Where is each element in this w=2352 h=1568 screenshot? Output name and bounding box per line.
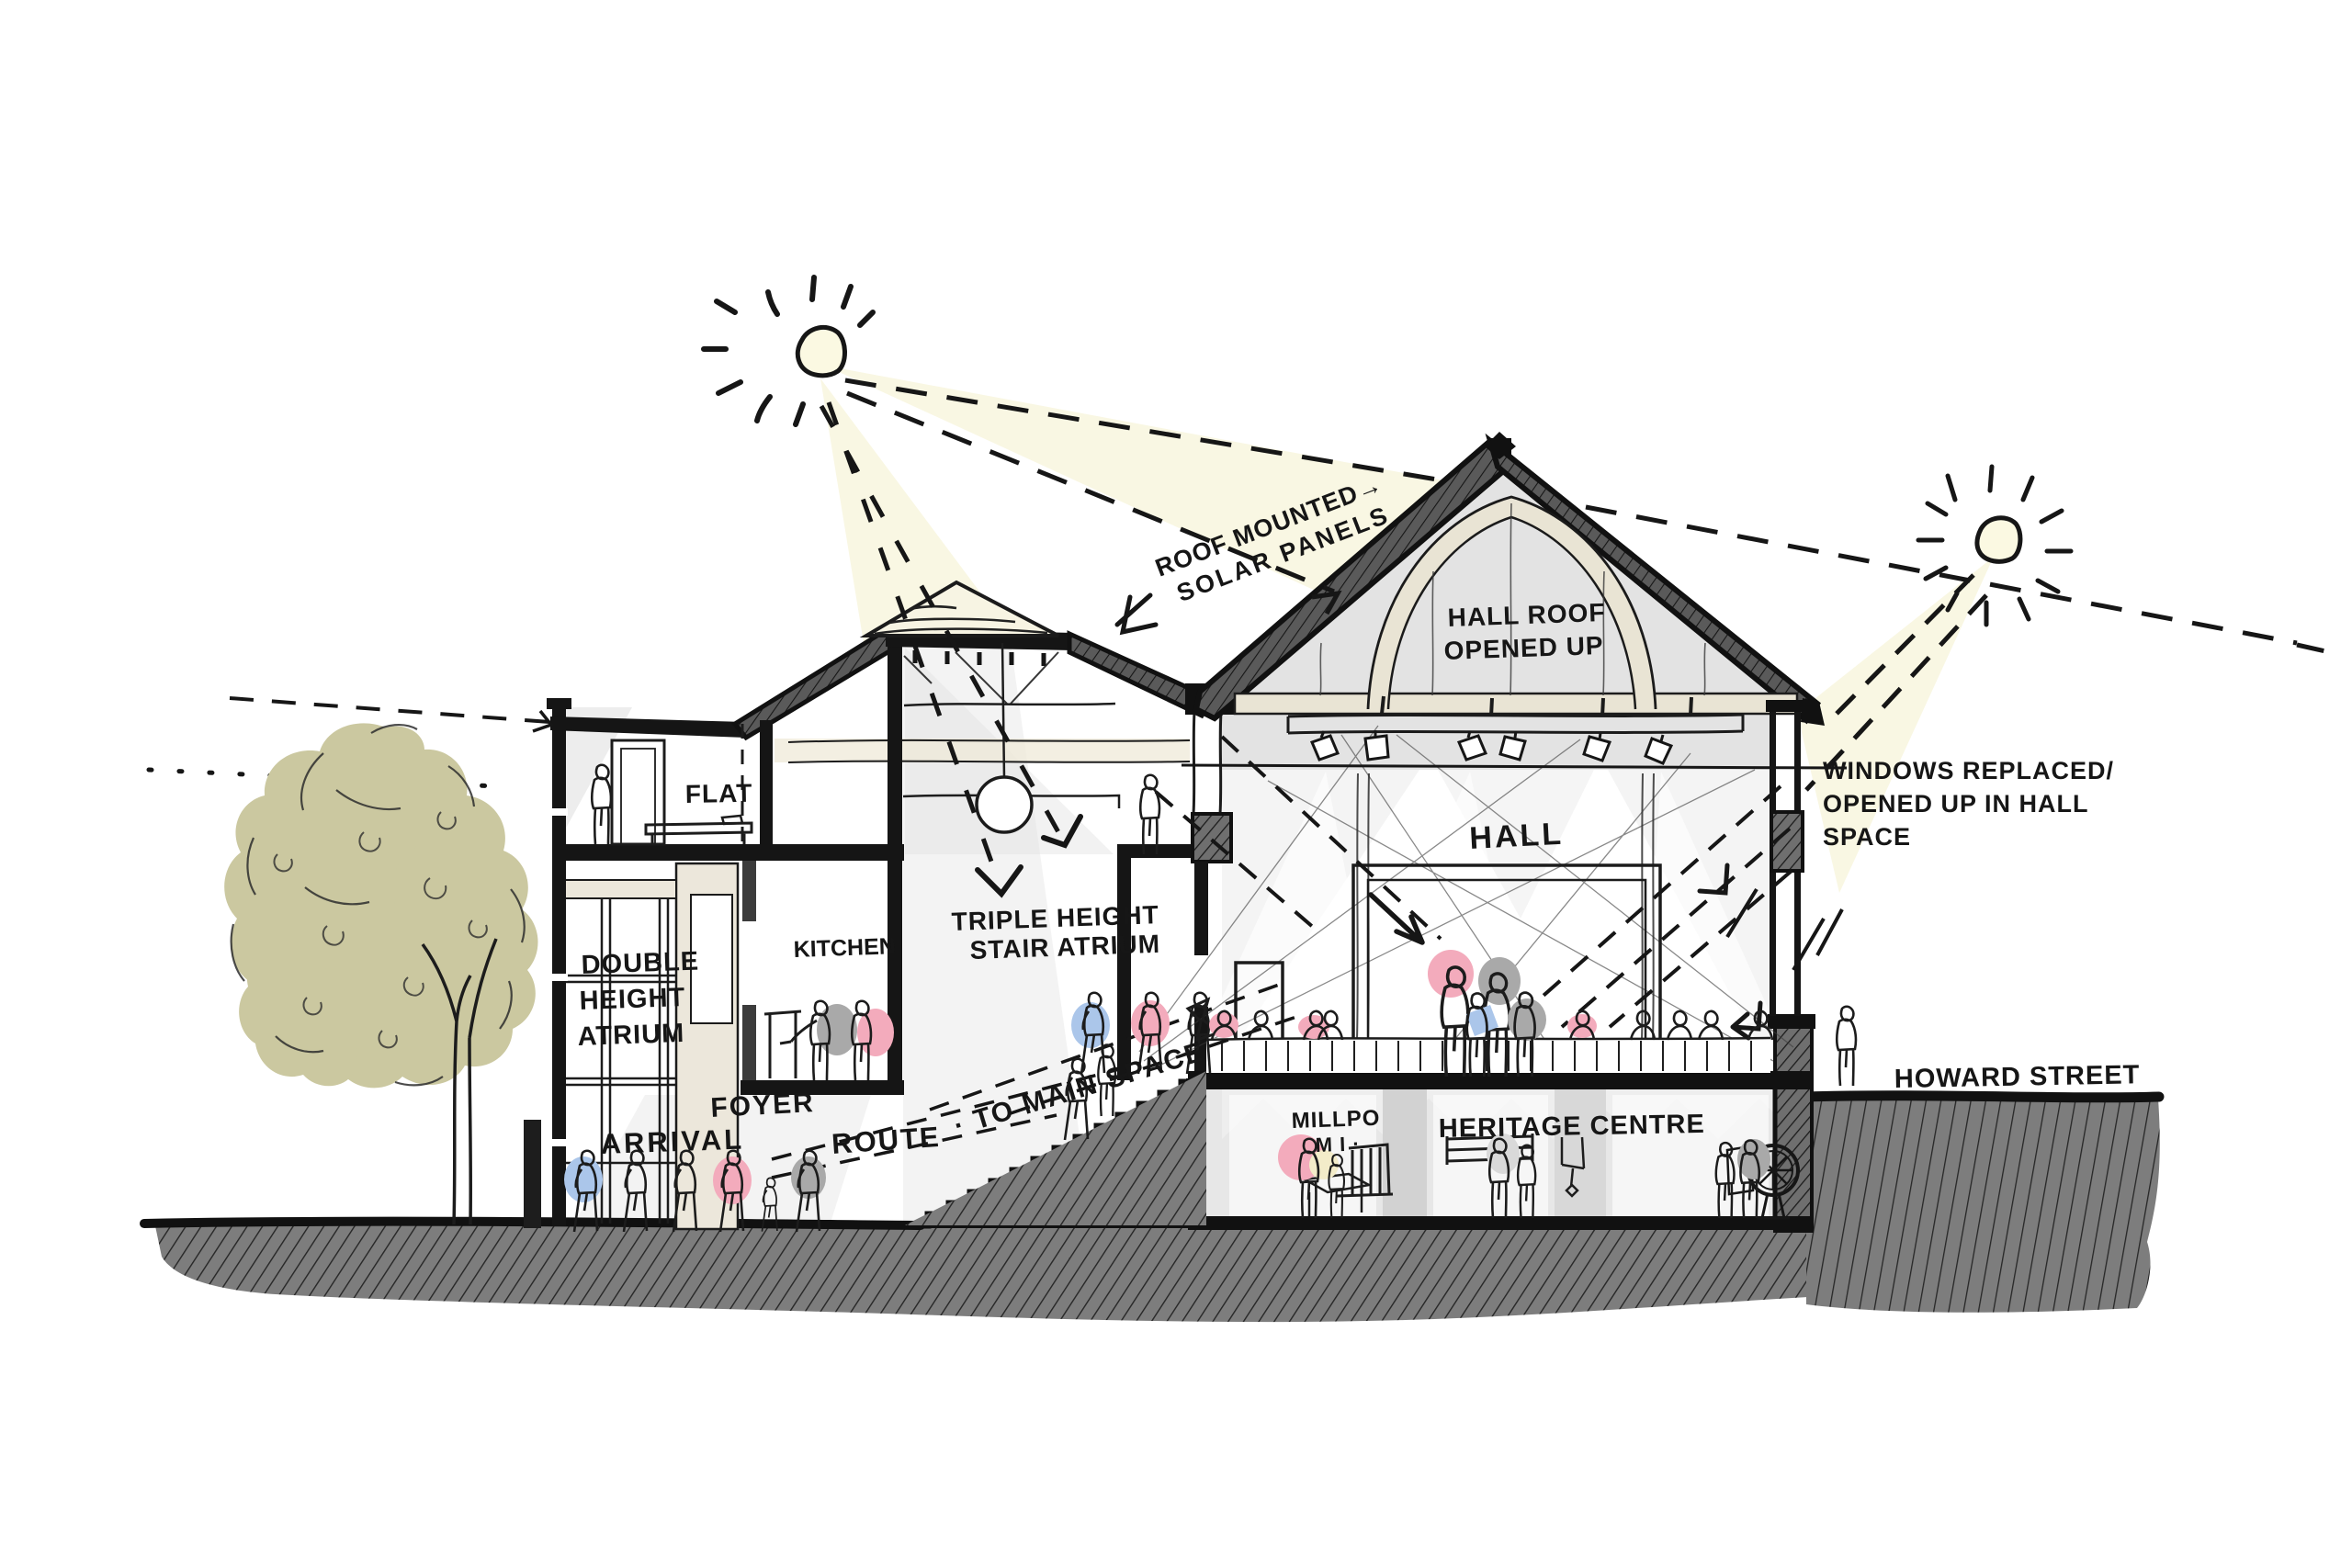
svg-text:SPACE: SPACE: [1823, 823, 1911, 851]
svg-text:HERITAGE CENTRE: HERITAGE CENTRE: [1439, 1110, 1705, 1144]
svg-text:HOWARD STREET: HOWARD STREET: [1894, 1060, 2141, 1094]
svg-text:FLAT: FLAT: [685, 779, 753, 808]
svg-text:DOUBLE: DOUBLE: [581, 947, 699, 980]
svg-text:HALL: HALL: [1468, 817, 1565, 856]
svg-text:WINDOWS REPLACED/: WINDOWS REPLACED/: [1823, 757, 2114, 784]
svg-text:KITCHEN: KITCHEN: [793, 933, 896, 963]
svg-text:OPENED UP: OPENED UP: [1443, 631, 1604, 665]
svg-text:HALL ROOF: HALL ROOF: [1447, 598, 1606, 632]
svg-text:OPENED UP IN HALL: OPENED UP IN HALL: [1823, 790, 2089, 818]
svg-text:ATRIUM: ATRIUM: [577, 1019, 685, 1052]
svg-text:HEIGHT: HEIGHT: [579, 983, 686, 1016]
svg-text:M I ·: M I ·: [1315, 1132, 1361, 1156]
svg-text:MILLPO: MILLPO: [1291, 1106, 1381, 1134]
svg-text:FOYER: FOYER: [710, 1088, 816, 1123]
svg-text:ARRIVAL: ARRIVAL: [600, 1123, 745, 1160]
